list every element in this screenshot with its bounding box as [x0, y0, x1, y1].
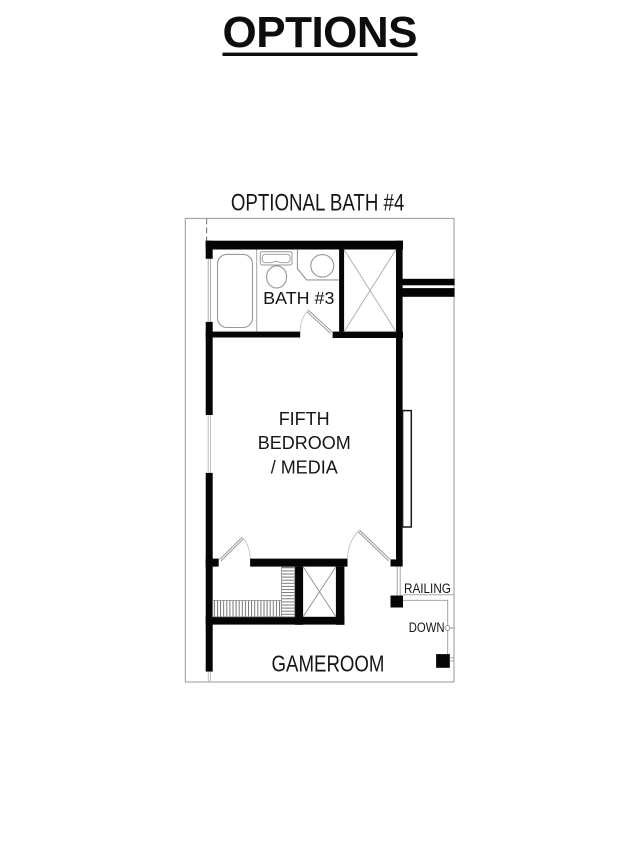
svg-text:GAMEROOM: GAMEROOM — [272, 650, 385, 676]
svg-text:RAILING: RAILING — [404, 581, 451, 596]
svg-text:OPTIONAL BATH #4: OPTIONAL BATH #4 — [231, 189, 405, 216]
svg-text:DOWN: DOWN — [409, 620, 445, 635]
svg-text:BATH #3: BATH #3 — [263, 288, 334, 308]
svg-text:OPTIONS: OPTIONS — [223, 8, 418, 57]
svg-text:BEDROOM: BEDROOM — [258, 433, 351, 453]
svg-text:FIFTH: FIFTH — [279, 409, 330, 429]
svg-text:/ MEDIA: / MEDIA — [271, 457, 338, 477]
